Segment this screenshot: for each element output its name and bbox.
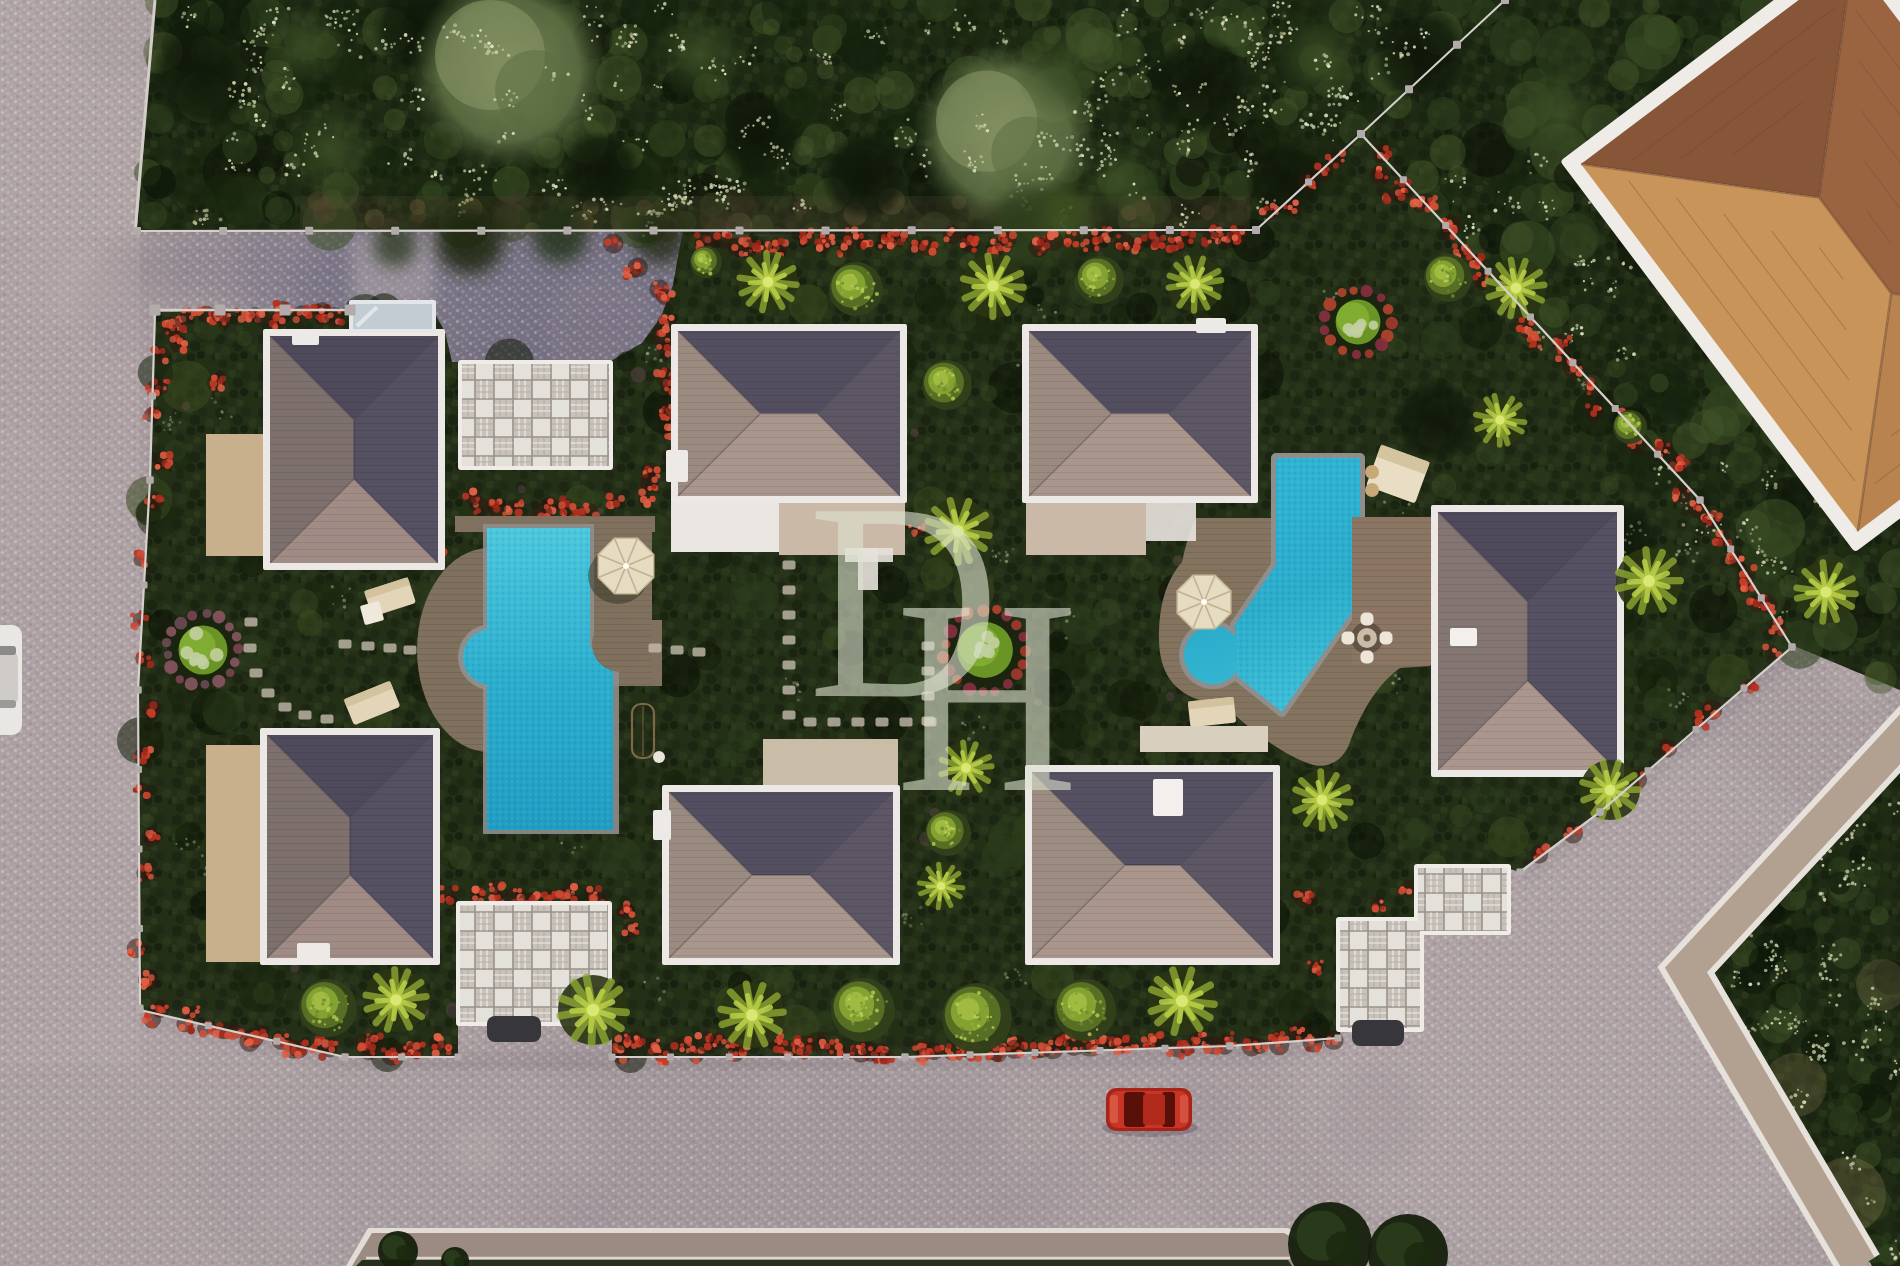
svg-text:H: H — [896, 542, 1078, 850]
